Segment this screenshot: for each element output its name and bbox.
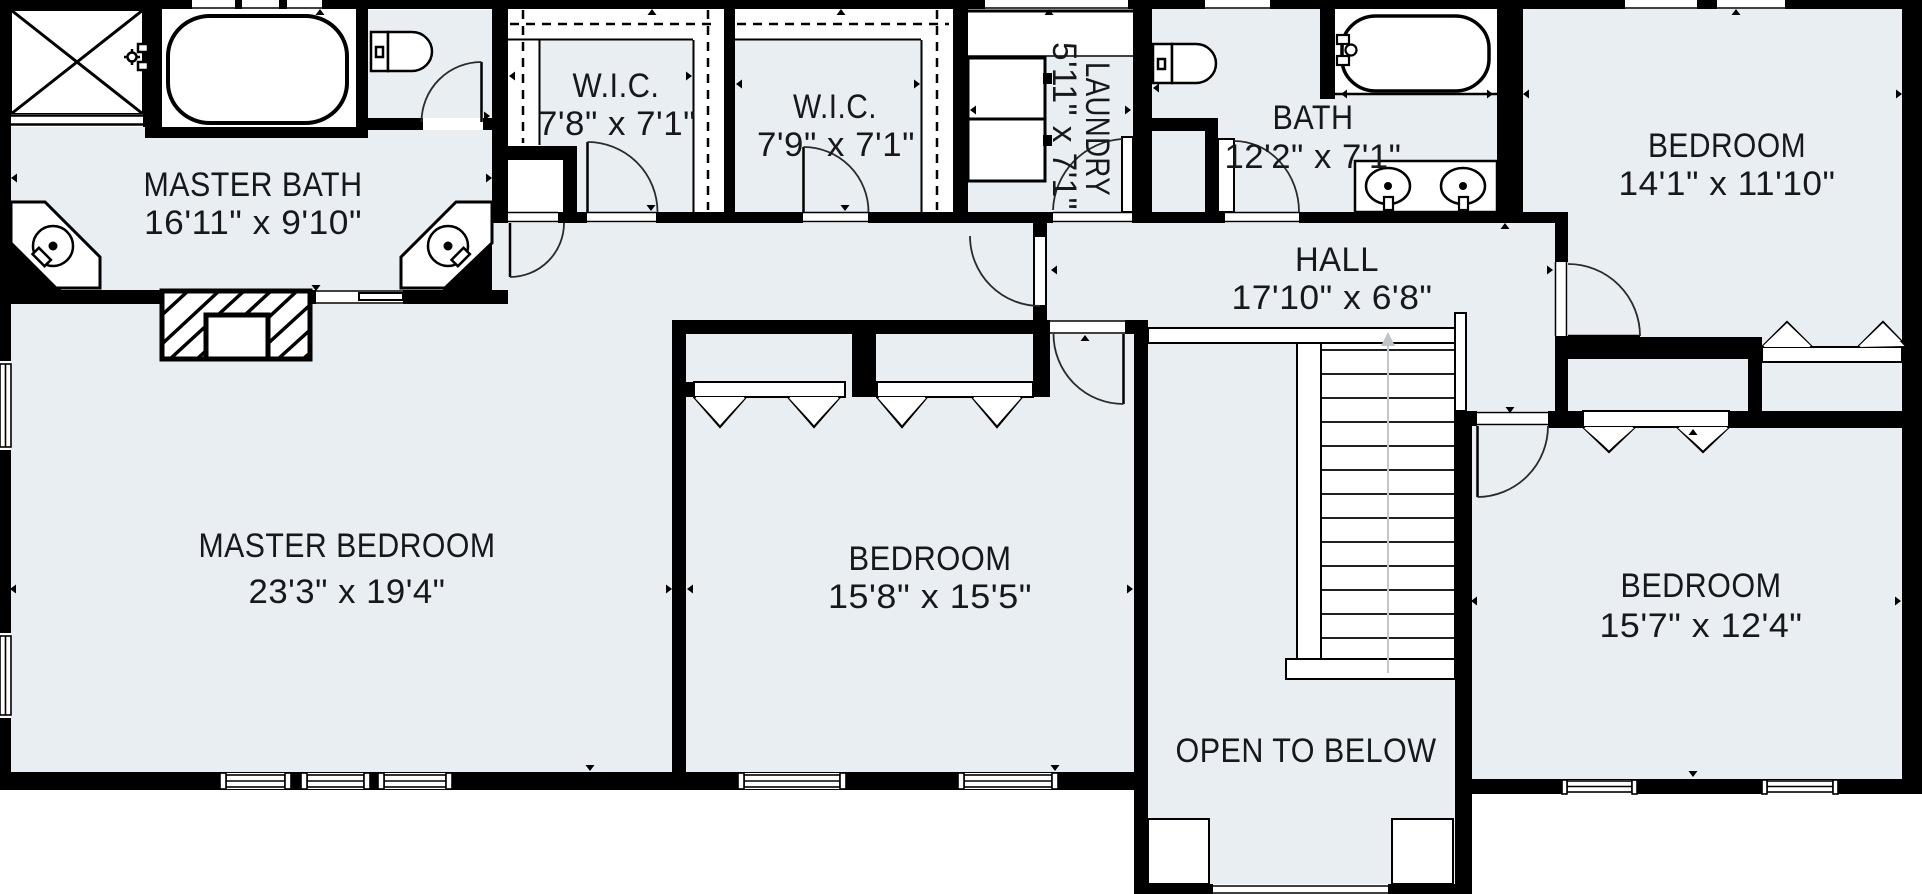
- svg-text:BEDROOM: BEDROOM: [849, 540, 1012, 578]
- svg-text:16'11" x 9'10": 16'11" x 9'10": [144, 204, 362, 242]
- svg-text:23'3" x 19'4": 23'3" x 19'4": [249, 573, 446, 611]
- svg-text:BATH: BATH: [1273, 99, 1354, 137]
- svg-text:W.I.C.: W.I.C.: [573, 67, 660, 105]
- svg-text:BEDROOM: BEDROOM: [1648, 127, 1806, 165]
- svg-text:14'1" x 11'10": 14'1" x 11'10": [1619, 165, 1836, 203]
- svg-text:7'9" x 7'1": 7'9" x 7'1": [757, 126, 915, 164]
- svg-text:OPEN TO BELOW: OPEN TO BELOW: [1176, 732, 1437, 770]
- svg-text:12'2" x 7'1": 12'2" x 7'1": [1225, 138, 1402, 176]
- svg-text:7'8" x 7'1": 7'8" x 7'1": [538, 105, 696, 143]
- svg-text:HALL: HALL: [1295, 241, 1379, 279]
- svg-text:BEDROOM: BEDROOM: [1621, 567, 1782, 605]
- svg-text:15'8" x 15'5": 15'8" x 15'5": [828, 578, 1032, 616]
- svg-text:17'10" x 6'8": 17'10" x 6'8": [1232, 279, 1433, 317]
- svg-text:15'7" x 12'4": 15'7" x 12'4": [1600, 607, 1803, 645]
- svg-text:MASTER BEDROOM: MASTER BEDROOM: [199, 527, 496, 565]
- svg-text:W.I.C.: W.I.C.: [793, 88, 877, 126]
- svg-text:MASTER BATH: MASTER BATH: [144, 166, 363, 204]
- svg-text:5'11" x 7'1": 5'11" x 7'1": [1045, 42, 1083, 210]
